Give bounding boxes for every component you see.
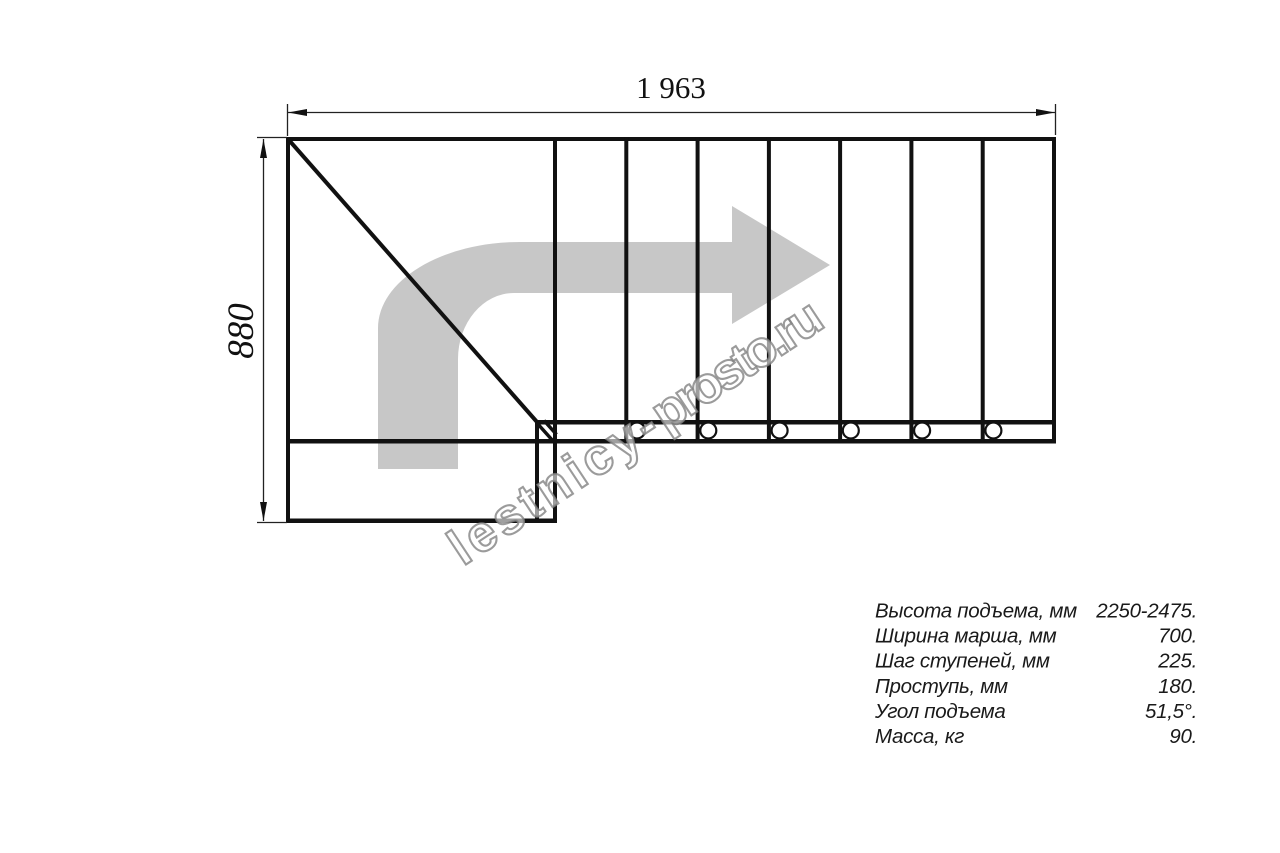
svg-text:Угол подъема: Угол подъема: [874, 700, 1006, 723]
svg-text:2250-2475.: 2250-2475.: [1095, 600, 1197, 623]
svg-text:1 963: 1 963: [636, 70, 706, 105]
svg-text:700.: 700.: [1158, 625, 1197, 648]
svg-text:180.: 180.: [1158, 675, 1197, 698]
svg-text:225.: 225.: [1157, 650, 1197, 673]
svg-text:Ширина марша, мм: Ширина марша, мм: [875, 625, 1057, 648]
svg-text:90.: 90.: [1169, 725, 1197, 748]
svg-text:51,5°.: 51,5°.: [1145, 700, 1197, 723]
svg-text:Проступь, мм: Проступь, мм: [875, 675, 1008, 698]
svg-text:Шаг ступеней, мм: Шаг ступеней, мм: [875, 650, 1050, 673]
svg-text:Масса, кг: Масса, кг: [875, 725, 964, 748]
svg-text:Высота подъема, мм: Высота подъема, мм: [875, 600, 1077, 623]
svg-text:880: 880: [221, 303, 262, 359]
